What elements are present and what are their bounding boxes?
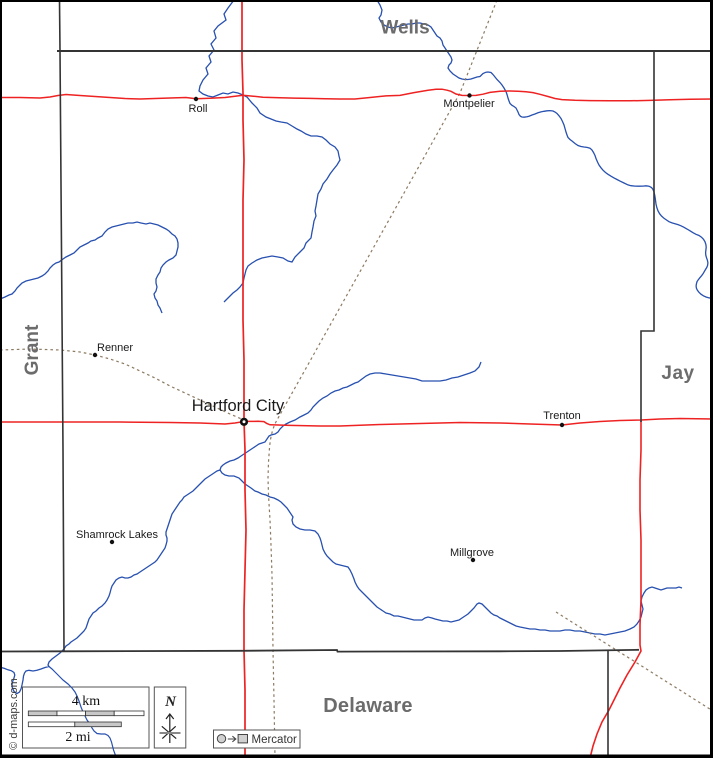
svg-text:© d-maps.com: © d-maps.com <box>8 678 20 750</box>
svg-text:Millgrove: Millgrove <box>450 547 494 559</box>
svg-text:4 km: 4 km <box>72 694 101 709</box>
svg-text:Jay: Jay <box>661 363 694 384</box>
svg-text:N: N <box>164 694 177 710</box>
svg-text:Renner: Renner <box>97 342 133 354</box>
svg-text:Delaware: Delaware <box>323 695 412 717</box>
svg-text:Grant: Grant <box>22 324 43 375</box>
svg-text:2 mi: 2 mi <box>65 730 90 745</box>
svg-text:Shamrock Lakes: Shamrock Lakes <box>76 529 158 541</box>
svg-text:Wells: Wells <box>380 18 429 39</box>
svg-text:Mercator: Mercator <box>252 734 298 746</box>
svg-text:Roll: Roll <box>189 103 208 115</box>
svg-text:Hartford City: Hartford City <box>192 397 285 415</box>
svg-text:Trenton: Trenton <box>543 410 581 422</box>
svg-text:Montpelier: Montpelier <box>443 98 495 110</box>
